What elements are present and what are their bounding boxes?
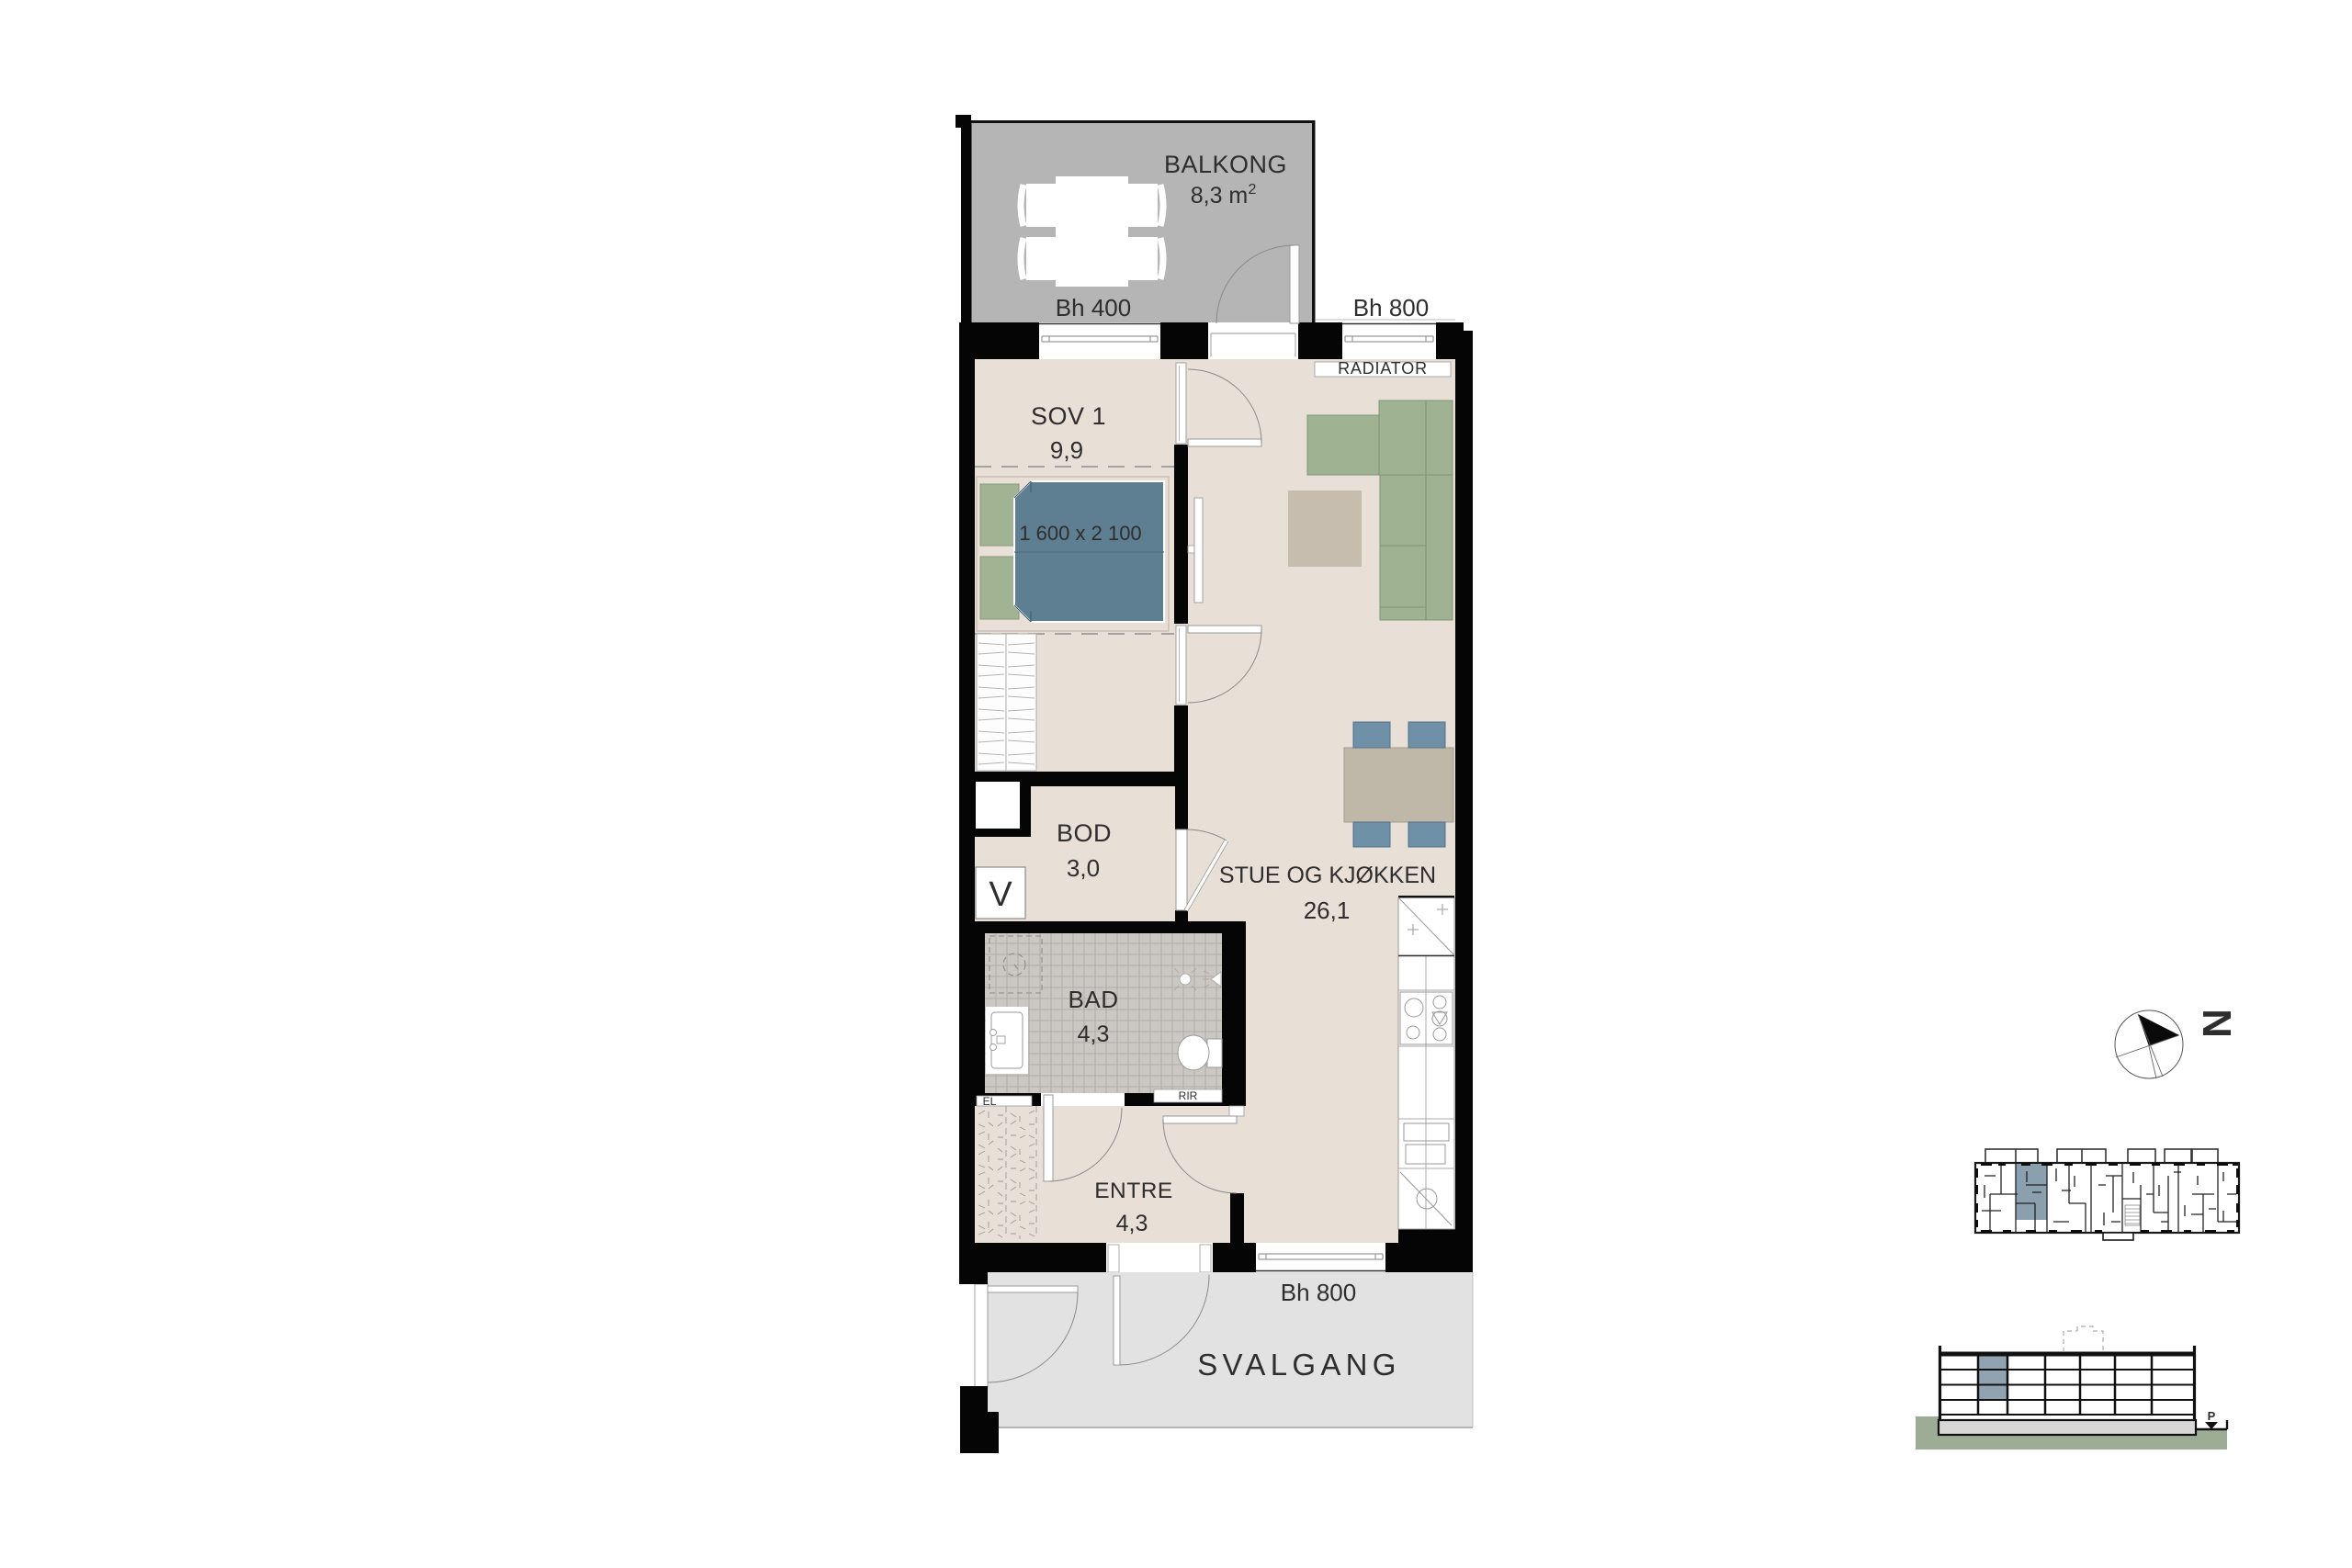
svg-text:2: 2	[1249, 182, 1257, 197]
svg-text:ENTRE: ENTRE	[1094, 1179, 1173, 1203]
svg-text:BAD: BAD	[1069, 986, 1119, 1013]
svg-text:3,0: 3,0	[1067, 854, 1100, 882]
svg-text:8,3 m: 8,3 m	[1191, 183, 1249, 209]
svg-text:RADIATOR: RADIATOR	[1338, 359, 1428, 378]
svg-text:Bh 400: Bh 400	[1056, 294, 1131, 321]
svg-text:RIR: RIR	[1179, 1089, 1198, 1102]
svg-text:STUE OG KJØKKEN: STUE OG KJØKKEN	[1219, 863, 1436, 888]
svg-text:BOD: BOD	[1057, 819, 1112, 847]
svg-text:V: V	[989, 875, 1012, 914]
svg-text:26,1: 26,1	[1304, 897, 1351, 924]
svg-text:BALKONG: BALKONG	[1164, 151, 1287, 178]
svg-text:SOV 1: SOV 1	[1031, 402, 1106, 430]
svg-text:Bh 800: Bh 800	[1281, 1279, 1356, 1306]
svg-text:Bh 800: Bh 800	[1353, 294, 1429, 321]
svg-text:4,3: 4,3	[1078, 1021, 1110, 1047]
svg-text:P: P	[2208, 1409, 2216, 1423]
svg-text:9,9: 9,9	[1050, 436, 1083, 464]
svg-text:SVALGANG: SVALGANG	[1197, 1348, 1401, 1382]
svg-text:N: N	[2194, 1009, 2239, 1038]
svg-text:1 600 x 2 100: 1 600 x 2 100	[1019, 522, 1141, 545]
svg-text:4,3: 4,3	[1116, 1211, 1148, 1236]
svg-text:EL: EL	[983, 1095, 997, 1108]
